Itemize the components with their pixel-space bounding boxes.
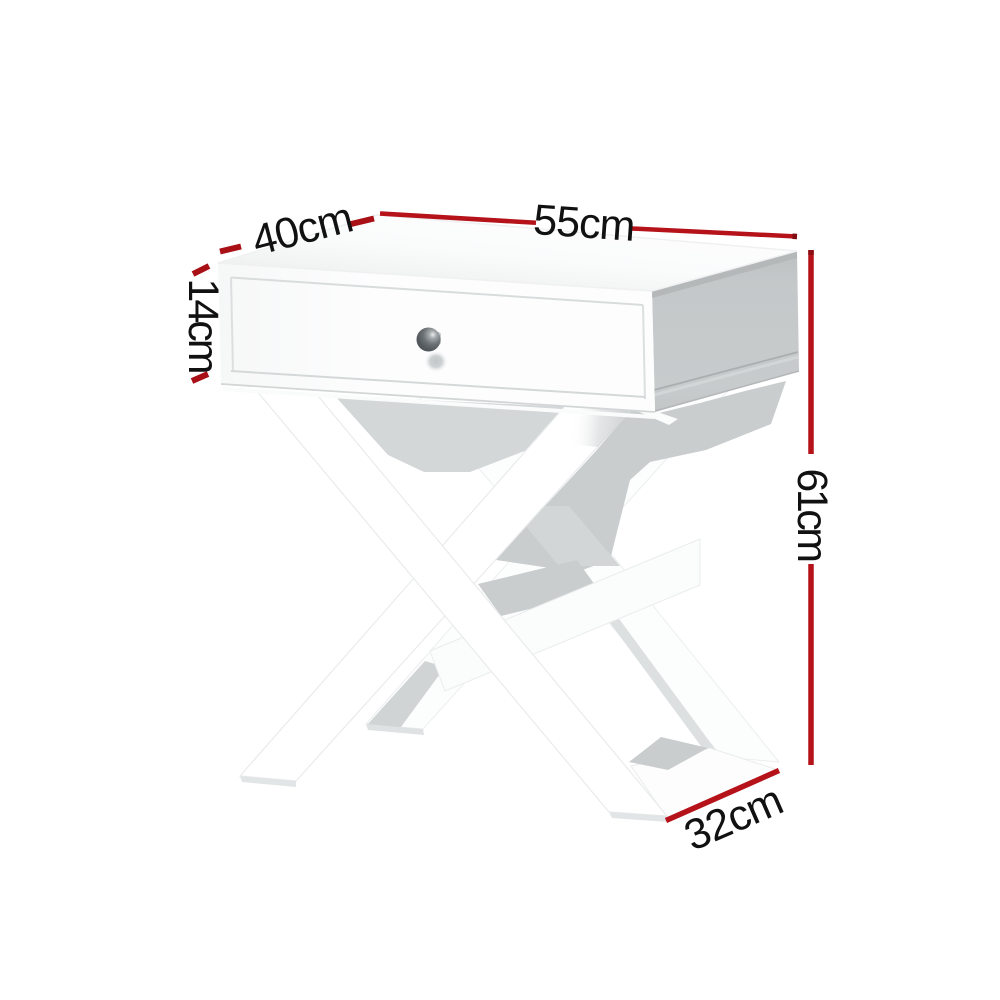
- svg-text:14cm: 14cm: [179, 278, 227, 371]
- svg-text:61cm: 61cm: [788, 468, 836, 560]
- svg-text:55cm: 55cm: [532, 196, 636, 251]
